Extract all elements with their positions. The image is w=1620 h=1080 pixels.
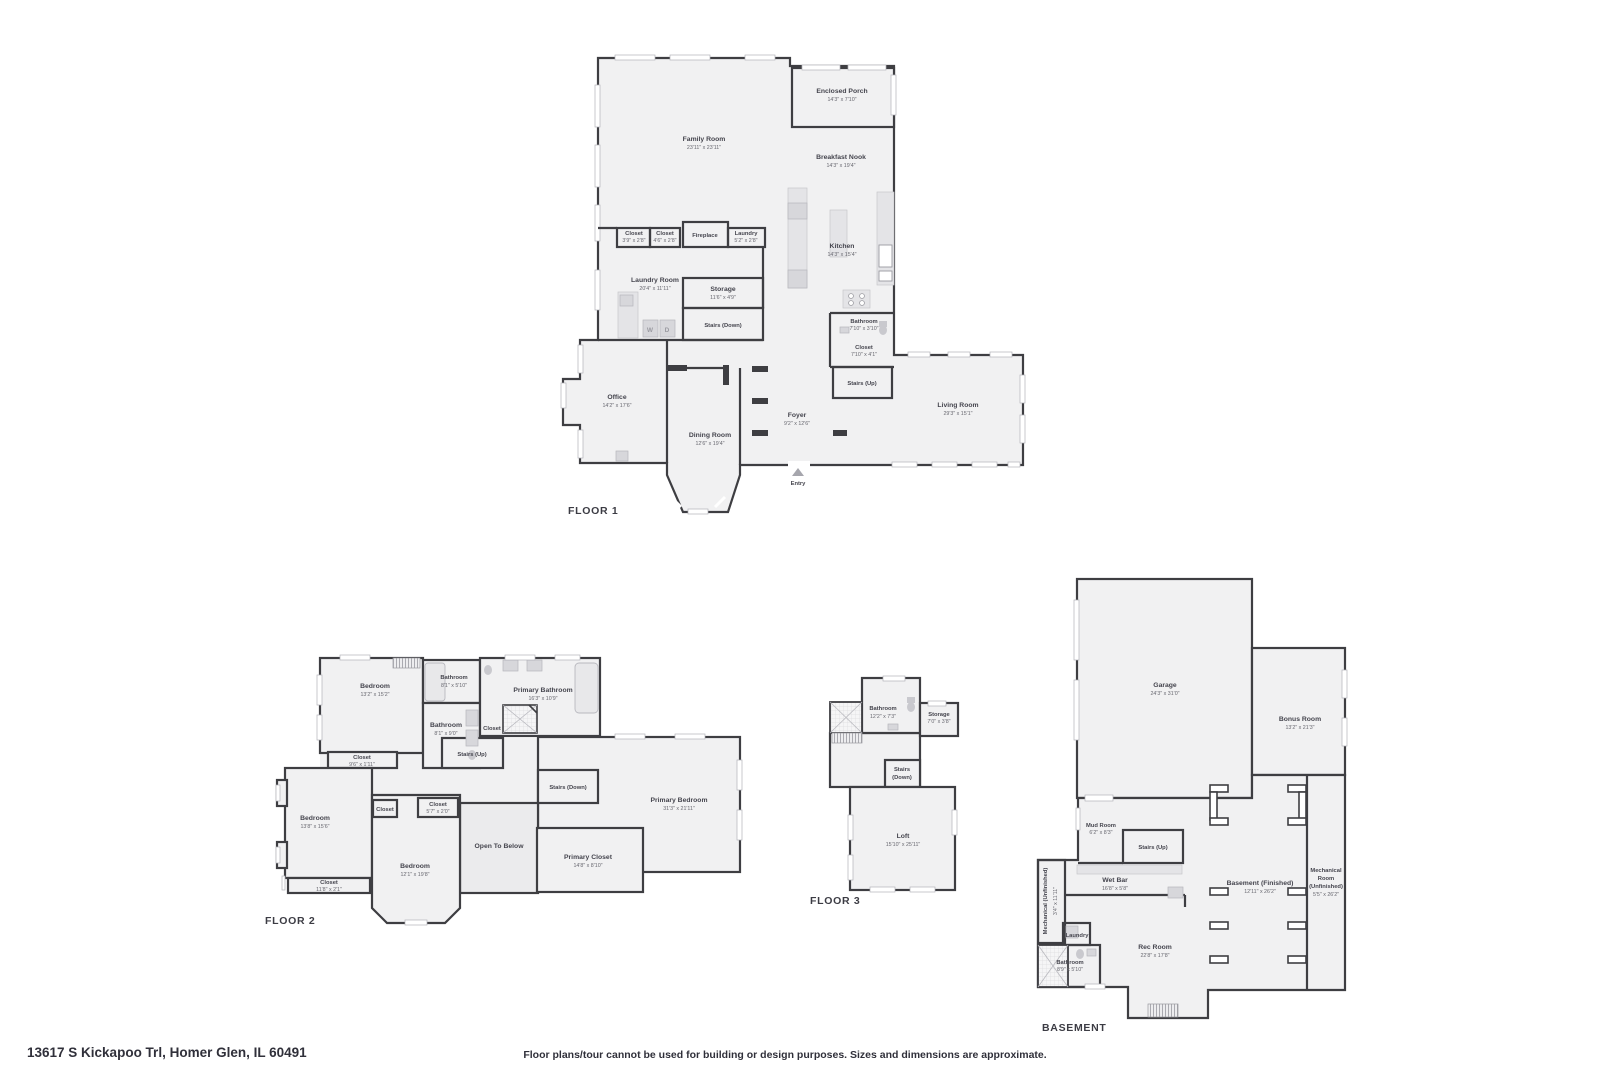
bedroom-2	[285, 768, 372, 878]
room-label-closet-1: Closet	[353, 755, 371, 761]
room-label-loft: Loft	[897, 833, 911, 840]
room-label-mechanical-room-3: (Unfinished)	[1309, 884, 1343, 890]
entry-door	[788, 461, 810, 476]
room-label-closet-2: Closet	[429, 802, 447, 808]
floor3-title: FLOOR 3	[810, 895, 860, 907]
washer-letter: W	[647, 327, 654, 334]
room-label-laundry-closet: Laundry	[735, 231, 759, 237]
vent-icon	[393, 658, 420, 668]
room-label-closet-c: Closet	[855, 345, 873, 351]
room-dims-bedroom-3: 12'1" x 19'8"	[400, 872, 429, 878]
room-dims-closet-a: 3'9" x 2'8"	[622, 238, 645, 244]
room-label-closet-small: Closet	[376, 807, 394, 813]
room-dims-family-room: 23'11" x 23'11"	[687, 145, 721, 151]
room-dims-laundry-closet: 5'2" x 2'8"	[734, 238, 757, 244]
room-dims-primary-closet: 14'8" x 8'10"	[573, 863, 602, 869]
room-label-dining-room: Dining Room	[689, 432, 731, 439]
room-dims-mechanical-room: 5'5" x 26'2"	[1313, 892, 1339, 898]
room-label-storage: Storage	[928, 712, 950, 718]
basement-plan: Garage 24'3" x 31'0" Bonus Room 13'2" x …	[1030, 560, 1350, 1035]
room-dims-basement-finished: 12'11" x 26'2"	[1244, 889, 1276, 895]
room-dims-bedroom-1: 13'2" x 15'2"	[360, 692, 389, 698]
room-label-primary-closet: Primary Closet	[564, 854, 613, 861]
floor3-vent-icon	[832, 733, 862, 743]
room-dims-rec-room: 22'8" x 17'8"	[1140, 953, 1169, 959]
room-label-wet-bar: Wet Bar	[1102, 877, 1128, 884]
room-label-mechanical-room-1: Mechanical	[1310, 868, 1342, 874]
room-label-storage: Storage	[710, 286, 736, 293]
floor3-plan: Bathroom 12'2" x 7'3" Storage 7'0" x 3'8…	[795, 650, 960, 895]
room-label-stairs-down: Stairs (Down)	[549, 785, 586, 791]
room-label-closet-a: Closet	[625, 231, 643, 237]
stairwell-hatch	[1148, 1004, 1178, 1017]
room-label-laundry: Laundry	[1066, 933, 1090, 939]
room-label-mechanical-unfinished: Mechanical (Unfinished)	[1043, 868, 1049, 935]
room-label-primary-bathroom: Primary Bathroom	[513, 687, 572, 694]
room-label-entry: Entry	[791, 481, 807, 487]
floor2-plan: Bedroom 13'2" x 15'2" Bathroom 8'1" x 5'…	[255, 630, 755, 950]
room-dims-enclosed-porch: 14'3" x 7'10"	[827, 97, 856, 103]
floor1-plan: Family Room 23'11" x 23'11" Enclosed Por…	[540, 45, 1040, 520]
room-dims-dining-room: 12'6" x 19'4"	[695, 441, 724, 447]
room-label-mud-room: Mud Room	[1086, 823, 1116, 829]
room-label-open-to-below: Open To Below	[475, 843, 525, 850]
floor2-title: FLOOR 2	[265, 915, 315, 927]
room-dims-bathroom-1: 8'1" x 5'10"	[441, 683, 467, 689]
room-label-stairs-up: Stairs (Up)	[1138, 845, 1167, 851]
room-dims-closet-b: 4'6" x 2'8"	[653, 238, 676, 244]
room-label-living-room: Living Room	[937, 402, 978, 409]
primary-tub-icon	[575, 663, 598, 713]
room-label-kitchen: Kitchen	[830, 243, 855, 250]
room-dims-loft: 15'10" x 25'11"	[886, 842, 921, 848]
tub-icon	[425, 663, 445, 701]
room-label-bedroom-3: Bedroom	[400, 863, 430, 870]
floor3-stairs-box	[885, 760, 920, 787]
floor1-title: FLOOR 1	[568, 505, 618, 517]
basement-title: BASEMENT	[1042, 1022, 1107, 1034]
stove-icon	[843, 290, 870, 308]
room-label-enclosed-porch: Enclosed Porch	[816, 88, 867, 95]
room-label-bathroom: Bathroom	[869, 706, 896, 712]
room-dims-wet-bar: 16'8" x 5'8"	[1102, 886, 1128, 892]
room-label-fireplace: Fireplace	[692, 233, 718, 239]
room-dims-storage: 11'6" x 4'9"	[710, 295, 736, 301]
room-label-laundry-room: Laundry Room	[631, 277, 679, 284]
basement-shower-icon	[1038, 945, 1068, 987]
room-dims-kitchen: 14'3" x 15'4"	[827, 252, 856, 258]
room-dims-bedroom-2: 13'8" x 15'6"	[300, 824, 329, 830]
entry-arrow-icon	[792, 468, 804, 476]
room-label-bathroom-1: Bathroom	[440, 675, 467, 681]
room-dims-bonus-room: 13'2" x 21'3"	[1285, 725, 1314, 731]
room-dims-closet-2: 5'7" x 2'0"	[426, 809, 449, 815]
room-dims-primary-bathroom: 16'3" x 10'9"	[528, 696, 557, 702]
primary-toilet-icon	[484, 665, 492, 675]
room-label-breakfast-nook: Breakfast Nook	[816, 154, 866, 161]
toilet-icon	[1076, 949, 1084, 959]
room-label-bedroom-1: Bedroom	[360, 683, 390, 690]
room-label-bathroom-2: Bathroom	[430, 722, 462, 729]
room-dims-garage: 24'3" x 31'0"	[1150, 691, 1179, 697]
room-label-primary-bedroom: Primary Bedroom	[650, 797, 707, 804]
bedroom-1	[320, 658, 423, 753]
room-label-mechanical-room-2: Room	[1318, 876, 1334, 882]
room-label-bathroom1: Bathroom	[850, 319, 877, 325]
room-label-garage: Garage	[1153, 682, 1177, 689]
room-dims-storage: 7'0" x 3'8"	[927, 719, 950, 725]
kitchen-counter	[877, 192, 894, 285]
room-dims-breakfast-nook: 14'3" x 19'4"	[826, 163, 855, 169]
room-dims-laundry-room: 20'4" x 11'11"	[639, 286, 670, 292]
room-dims-office: 14'2" x 17'6"	[602, 403, 631, 409]
room-label-basement-finished: Basement (Finished)	[1227, 880, 1294, 887]
room-dims-closet-3: 11'8" x 2'1"	[316, 887, 342, 893]
room-label-bedroom-2: Bedroom	[300, 815, 330, 822]
room-label-stairs-down: Stairs (Down)	[704, 323, 741, 329]
room-label-bathroom: Bathroom	[1056, 960, 1083, 966]
room-dims-closet-c: 7'10" x 4'1"	[851, 352, 877, 358]
office-desk-icon	[616, 451, 628, 461]
room-label-closet-b: Closet	[656, 231, 674, 237]
wet-bar-counter	[1077, 865, 1182, 874]
bonus-room	[1252, 648, 1345, 775]
room-dims-bathroom: 8'9" x 5'10"	[1057, 967, 1083, 973]
room-dims-foyer: 9'2" x 12'6"	[784, 421, 810, 427]
room-dims-bathroom1: 7'10" x 3'10"	[849, 326, 878, 332]
room-label-bonus-room: Bonus Room	[1279, 716, 1321, 723]
toilet-icon	[907, 702, 915, 712]
room-dims-primary-bedroom: 31'3" x 21'11"	[663, 806, 695, 812]
room-dims-living-room: 29'3" x 15'1"	[943, 411, 972, 417]
room-label-closet-3: Closet	[320, 880, 338, 886]
room-dims-closet-1: 9'6" x 1'11"	[349, 762, 375, 768]
room-label-stairs-up: Stairs (Up)	[457, 752, 486, 758]
room-label-stairs-up: Stairs (Up)	[847, 381, 876, 387]
room-label-office: Office	[607, 394, 626, 401]
room-label-rec-room: Rec Room	[1138, 944, 1172, 951]
floor3-shower-icon	[830, 702, 862, 733]
dryer-letter: D	[665, 327, 670, 334]
property-address: 13617 S Kickapoo Trl, Homer Glen, IL 604…	[27, 1045, 307, 1060]
room-dims-mud-room: 6'2" x 8'3"	[1089, 830, 1112, 836]
room-label-stairs: Stairs	[894, 767, 910, 773]
room-label-stairs-2: (Down)	[892, 775, 912, 781]
floorplan-sheet: { "page": { "address": "13617 S Kickapoo…	[0, 0, 1620, 1080]
room-label-family-room: Family Room	[683, 136, 726, 143]
room-label-closet-pb: Closet	[483, 726, 501, 732]
room-dims-mechanical-unfinished: 3'4" x 11'11"	[1053, 887, 1059, 915]
room-label-foyer: Foyer	[788, 412, 807, 419]
room-dims-bathroom-2: 8'1" x 9'0"	[434, 731, 457, 737]
room-dims-bathroom: 12'2" x 7'3"	[870, 714, 896, 720]
shower-icon	[503, 705, 537, 733]
disclaimer-text: Floor plans/tour cannot be used for buil…	[440, 1049, 1130, 1061]
